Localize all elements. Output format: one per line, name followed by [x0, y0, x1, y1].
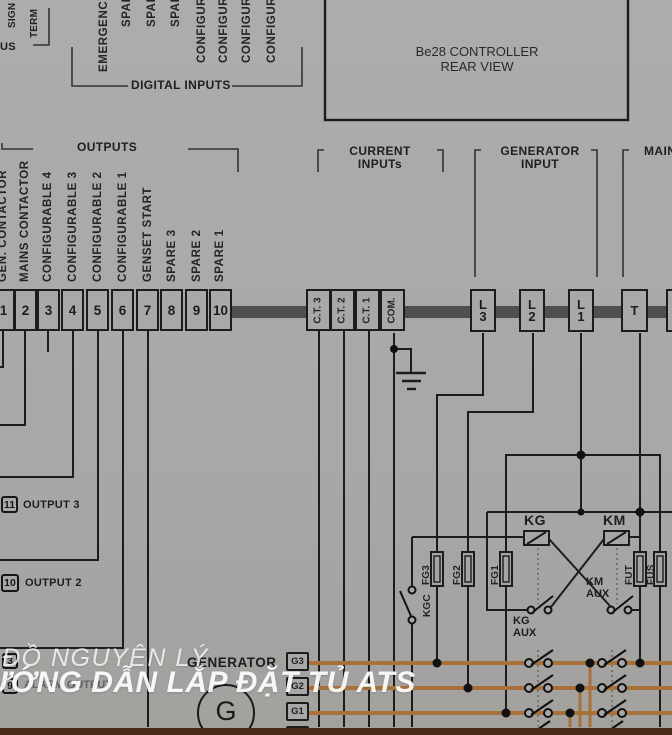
digital-input-label: CONFIGURABLE [196, 0, 209, 63]
generator-terminal-box: G1 [286, 702, 309, 721]
output2-terminal-box: 10 [1, 574, 19, 592]
digital-input-label: SPARE [146, 0, 159, 27]
km-aux-line1: KM [586, 577, 609, 589]
digital-input-label: CONFIGURABLE [266, 0, 279, 63]
signal-label-fragment: SIGN [6, 3, 19, 28]
wiring-svg [0, 0, 672, 735]
ground-symbol-icon [396, 373, 426, 389]
km-aux-line2: AUX [586, 589, 609, 601]
output-terminal-box: 5 [86, 289, 109, 331]
fuse-label: FG3 [420, 565, 433, 585]
contactor-coils [524, 531, 629, 545]
generator-input-line2: INPUT [490, 158, 590, 171]
kgc-switch-icon [400, 587, 416, 624]
output-label: GENSET START [142, 187, 155, 282]
output-label: CONFIGURABLE 4 [42, 171, 55, 282]
current-input-terminal-label: COM. [387, 297, 398, 323]
output-terminal-box: 4 [61, 289, 84, 331]
km-aux-label: KM AUX [586, 577, 609, 600]
digital-input-label: SPARE [170, 0, 183, 27]
output-terminal-box: 2 [14, 289, 37, 331]
digital-input-label: CONFIGURABLE [241, 0, 254, 63]
kg-coil-label: KG [524, 512, 546, 528]
bottom-strip [0, 728, 672, 735]
output3-label: OUTPUT 3 [23, 499, 80, 511]
digital-inputs-header: DIGITAL INPUTS [131, 79, 231, 92]
phase-terminal-text: 2 [528, 311, 535, 323]
digital-input-label: EMERGENCY [98, 0, 111, 72]
km-coil-label: KM [603, 512, 626, 528]
schematic-page: SIGN TERM US DIGITAL INPUTS OUTPUTS CURR… [0, 0, 672, 735]
output-terminal-box: 7 [136, 289, 159, 331]
output-terminal-box: 6 [111, 289, 134, 331]
kg-aux-label: KG AUX [513, 616, 536, 639]
output-label: CONFIGURABLE 1 [117, 171, 130, 282]
output-label: SPARE 2 [191, 229, 204, 282]
phase-terminal-text: 1 [577, 311, 584, 323]
phase-terminal-box: L2 [519, 289, 545, 332]
phase-terminal-text: 3 [479, 311, 486, 323]
bus-label-fragment: US [0, 41, 16, 53]
output-label: SPARE 1 [214, 229, 227, 282]
mains-header: MAINS [644, 145, 672, 158]
clipped-terminal-box [666, 289, 672, 332]
output3-terminal-box: 11 [1, 496, 18, 513]
output-label: CONFIGURABLE 2 [92, 171, 105, 282]
watermark-line2: ƯỚNG DẪN LẮP ĐẶT TỦ ATS [0, 666, 416, 700]
kg-aux-line1: KG [513, 616, 536, 628]
terminal-label-fragment: TERM [28, 9, 41, 38]
output-label: MAINS CONTACTOR [19, 160, 32, 282]
current-input-terminal-label: C.T. 2 [337, 297, 348, 323]
mains-terminal-box: T [621, 289, 648, 332]
output-terminal-box: 10 [209, 289, 232, 331]
current-inputs-line2: INPUTs [330, 158, 430, 171]
digital-input-label: CONFIGURABLE [218, 0, 231, 63]
current-input-terminal-box: C.T. 2 [330, 289, 355, 331]
current-inputs-header: CURRENT INPUTs [330, 145, 430, 171]
output-terminal-box: 9 [185, 289, 208, 331]
current-input-terminal-label: C.T. 1 [362, 297, 373, 323]
output-terminal-box: 3 [37, 289, 60, 331]
current-input-terminal-label: C.T. 3 [313, 297, 324, 323]
generator-input-header: GENERATOR INPUT [490, 145, 590, 171]
phase-terminal-box: L1 [568, 289, 594, 332]
controller-title-line2: REAR VIEW [330, 59, 624, 74]
fuse-label: FUS [645, 564, 658, 585]
fuse-label: FUT [623, 565, 636, 585]
current-input-terminal-box: C.T. 3 [306, 289, 331, 331]
digital-input-label: SPARE [121, 0, 134, 27]
mains-terminal-text: T [631, 305, 639, 317]
mechanical-links [538, 548, 617, 726]
current-input-terminal-box: COM. [380, 289, 405, 331]
phase-terminal-box: L3 [470, 289, 496, 332]
kgc-label: KGC [421, 594, 434, 617]
kg-aux-line2: AUX [513, 628, 536, 640]
output2-label: OUTPUT 2 [25, 577, 82, 589]
fuse-label: FG1 [489, 565, 502, 585]
outputs-header: OUTPUTS [77, 141, 137, 154]
controller-board-edge [229, 306, 672, 318]
fuse-label: FG2 [451, 565, 464, 585]
generator-symbol-letter: G [215, 696, 236, 726]
output-terminal-box: 8 [160, 289, 183, 331]
current-input-terminal-box: C.T. 1 [355, 289, 380, 331]
output-label: CONFIGURABLE 3 [67, 171, 80, 282]
controller-title-line1: Be28 CONTROLLER [330, 44, 624, 59]
output-label: GEN. CONTACTOR [0, 170, 10, 282]
output-label: SPARE 3 [166, 229, 179, 282]
output-terminal-box: 1 [0, 289, 15, 331]
controller-title: Be28 CONTROLLER REAR VIEW [330, 44, 624, 74]
